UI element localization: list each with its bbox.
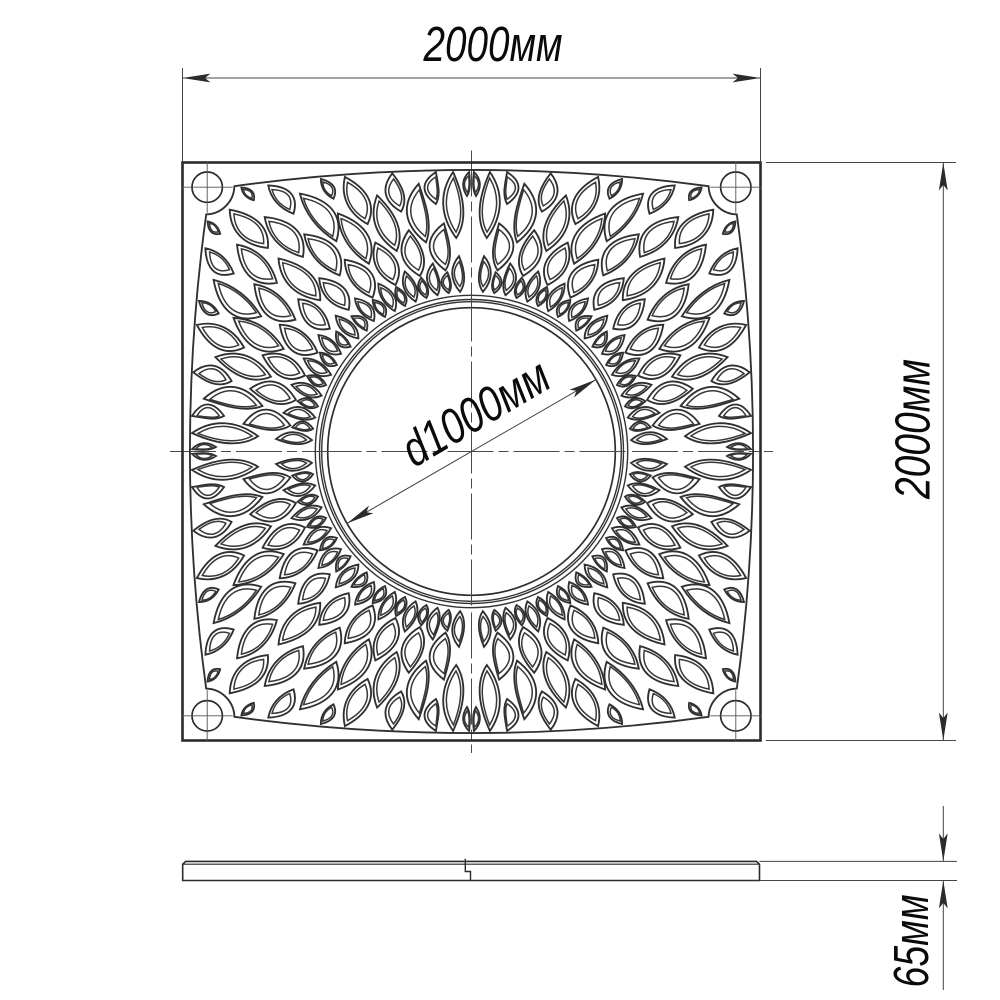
svg-text:2000мм: 2000мм — [887, 359, 941, 500]
svg-text:65мм: 65мм — [885, 895, 939, 988]
svg-text:2000мм: 2000мм — [423, 18, 563, 72]
